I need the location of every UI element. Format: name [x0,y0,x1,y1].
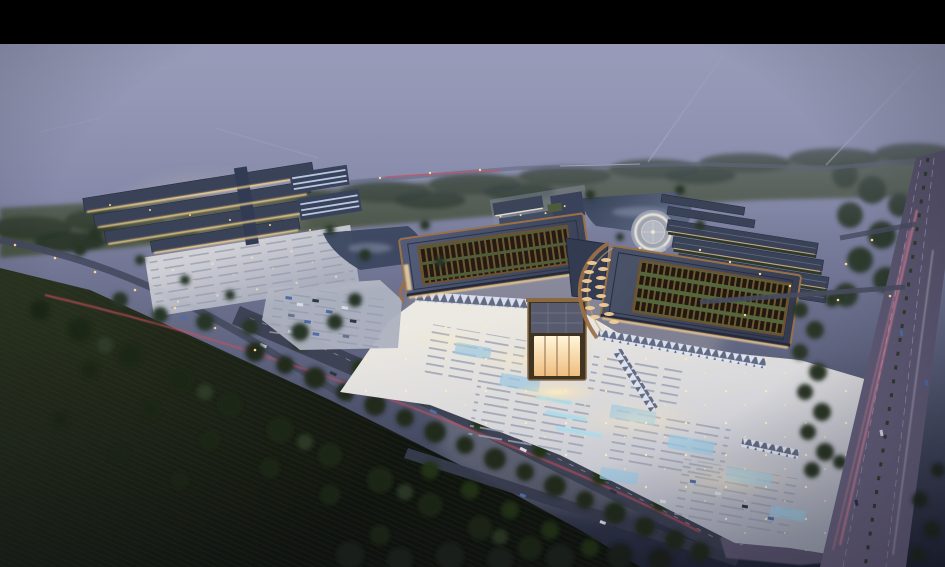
letterbox-top-bar [0,0,945,44]
scene [0,0,945,567]
vignette-overlay [0,0,945,567]
rendering-canvas [0,0,945,567]
